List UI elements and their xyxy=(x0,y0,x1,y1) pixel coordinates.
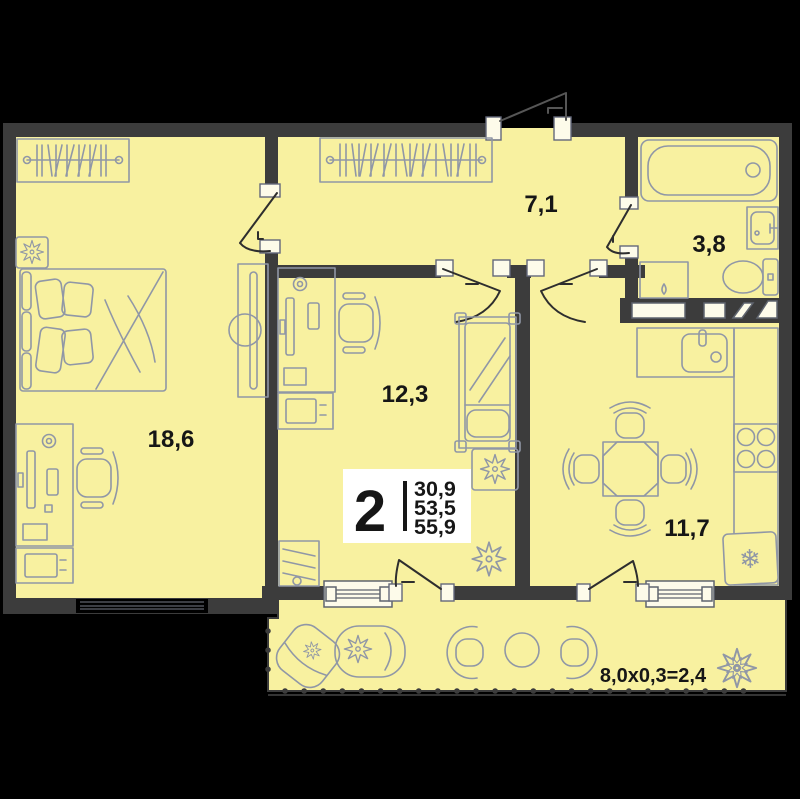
room-label-kitchen: 11,7 xyxy=(664,515,709,542)
badge-divider xyxy=(403,481,407,531)
room-label-bathroom: 3,8 xyxy=(692,231,725,258)
fridge: ❄ xyxy=(723,532,779,586)
room-label-bedroom: 18,6 xyxy=(148,426,195,453)
room-label-hallway: 7,1 xyxy=(524,191,557,218)
floor-plan-page: ❄ 18,6 12,3 xyxy=(0,0,800,799)
kitchen-window xyxy=(646,581,714,607)
balcony-floor xyxy=(268,598,786,691)
living-room-window xyxy=(324,581,392,607)
badge-rooms-count: 2 xyxy=(354,479,386,544)
balcony-dimension-label: 8,0x0,3=2,4 xyxy=(600,665,707,687)
room-label-living-room: 12,3 xyxy=(382,381,429,408)
floor-plan: ❄ 18,6 12,3 xyxy=(0,0,800,799)
snowflake-icon: ❄ xyxy=(738,544,761,575)
badge-area-total: 55,9 xyxy=(414,515,456,539)
area-badge: 2 30,9 53,5 55,9 xyxy=(343,469,471,544)
